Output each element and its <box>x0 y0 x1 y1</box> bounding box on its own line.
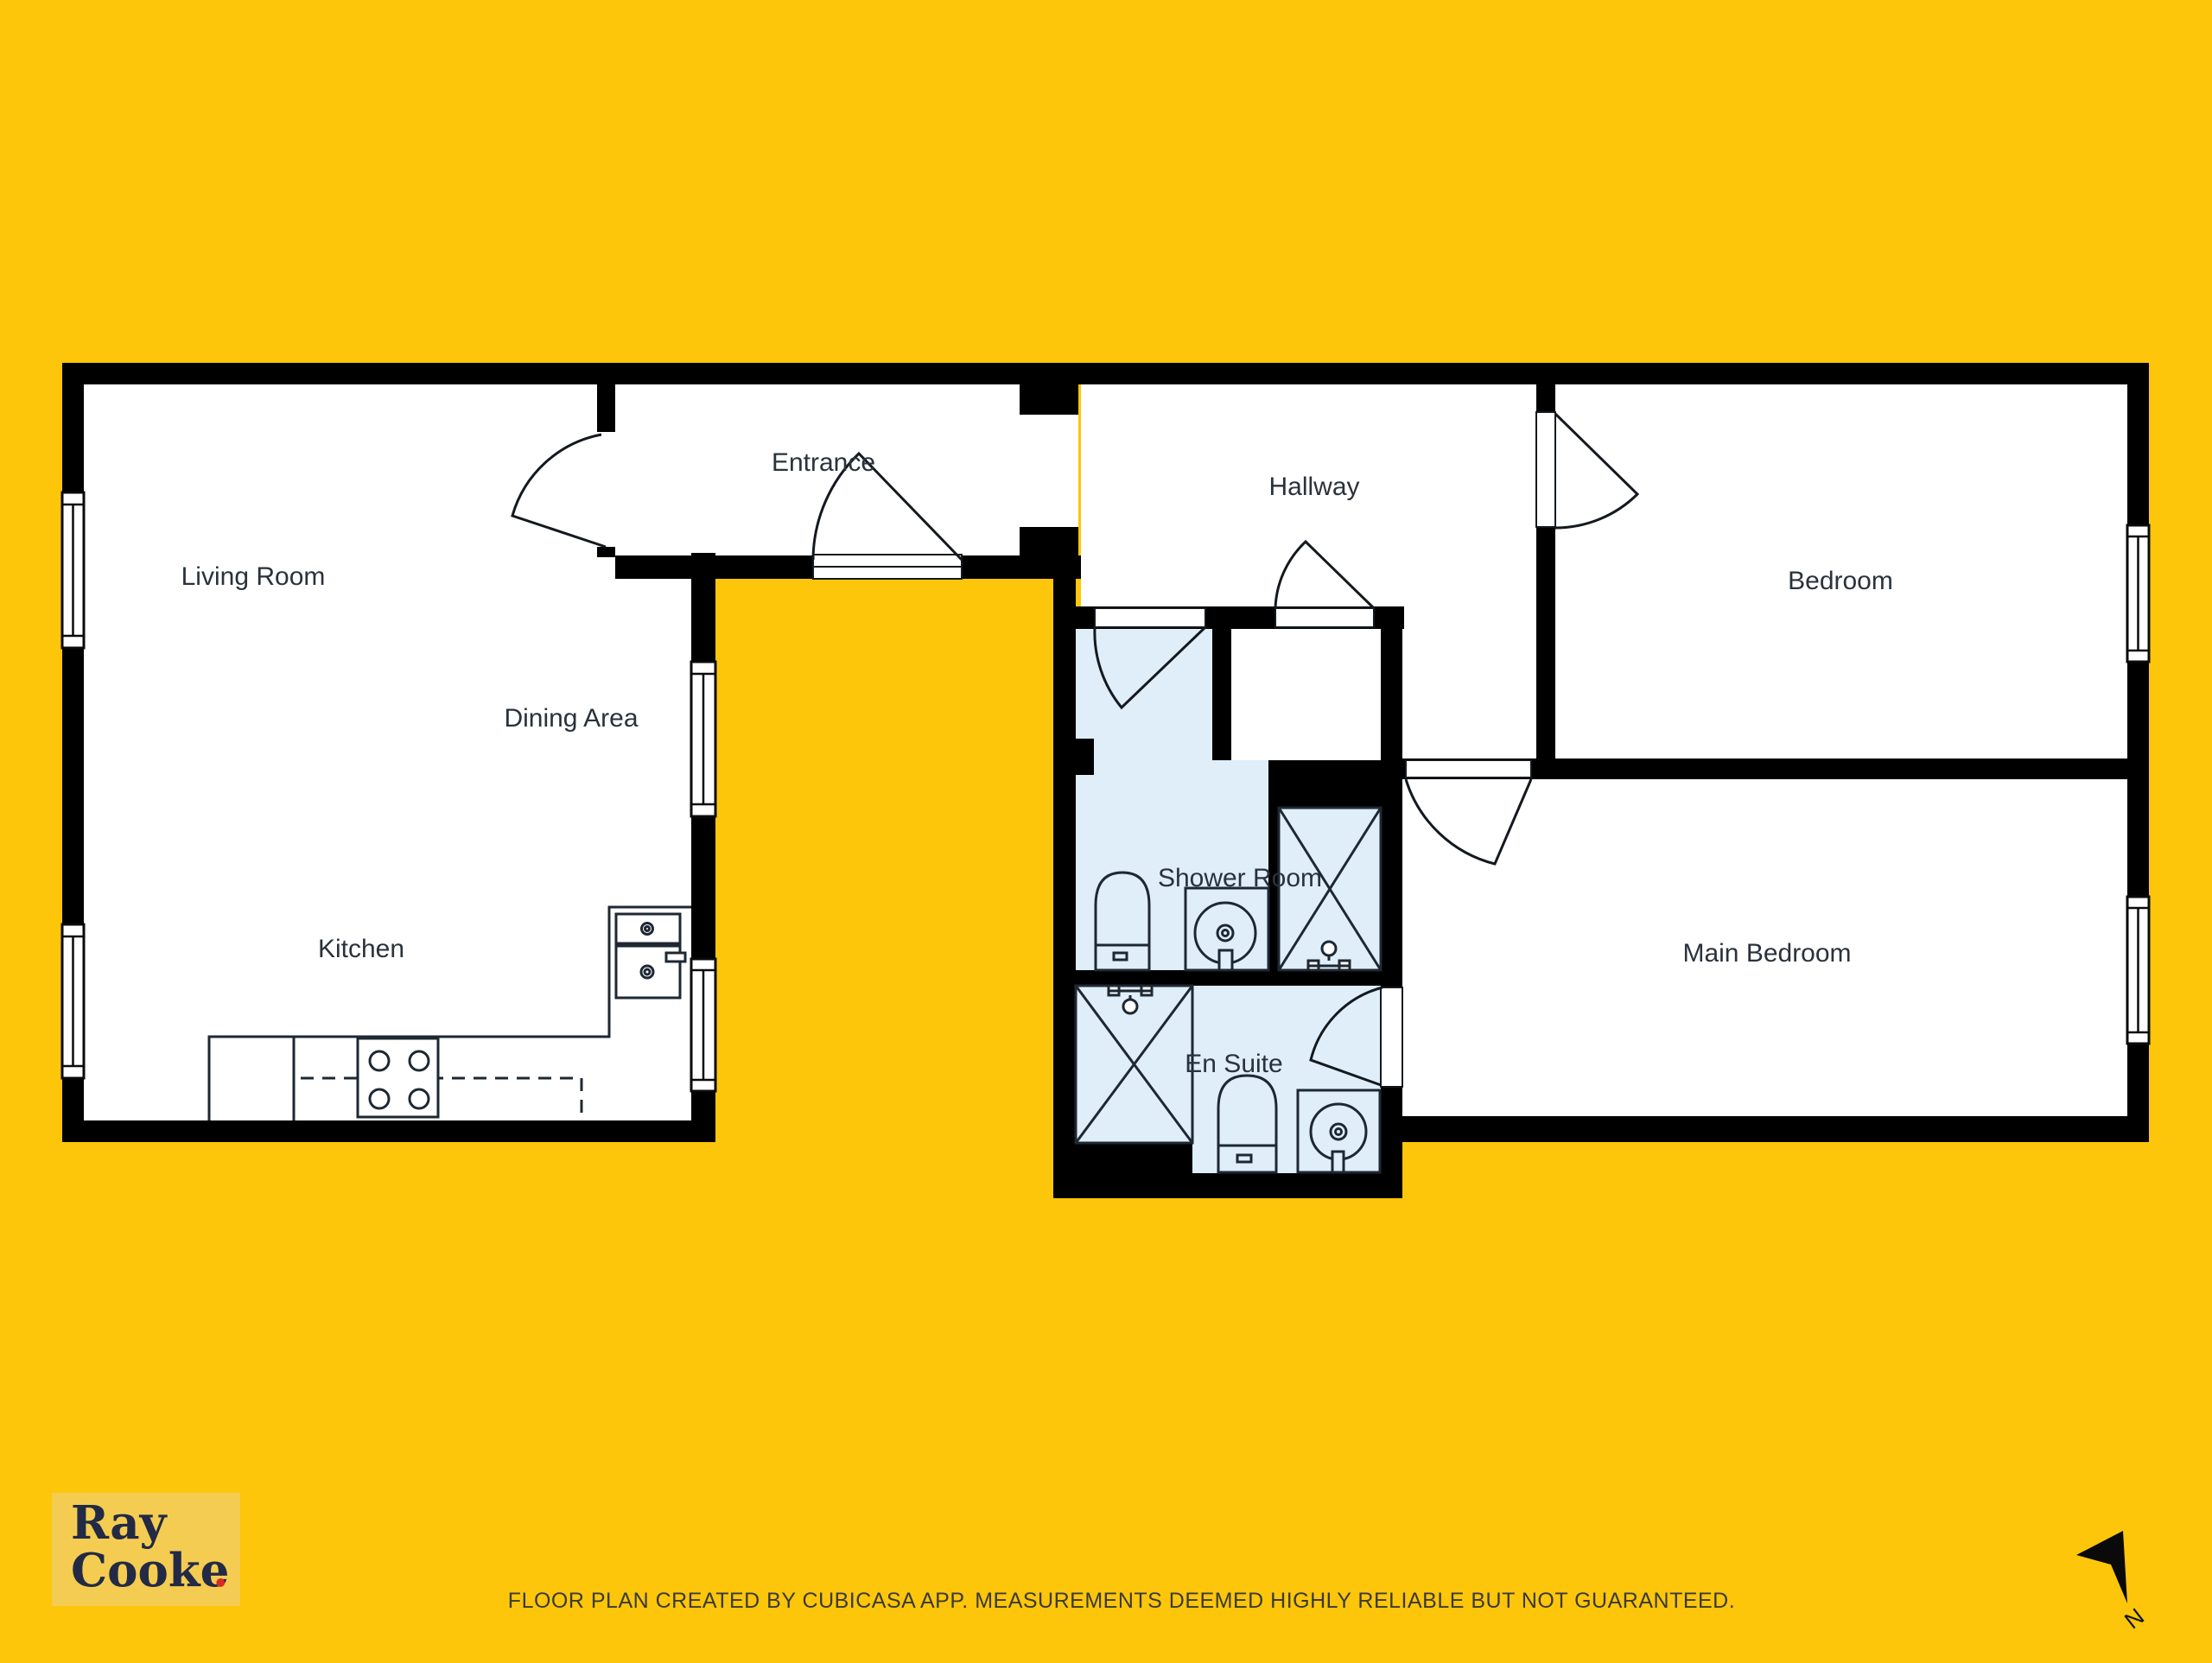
bedroom-door-opening <box>1536 412 1555 527</box>
kitchen-label: Kitchen <box>318 935 404 963</box>
en-suite-label: En Suite <box>1185 1050 1282 1078</box>
wall-closet-left <box>1212 606 1231 760</box>
wall-ensuite-bottom <box>1053 1173 1402 1198</box>
dining-area-label: Dining Area <box>504 704 638 733</box>
main-bedroom-door-opening <box>1406 760 1531 778</box>
floor-plan-page: Living Room Dining Area Kitchen Entrance… <box>0 0 2212 1659</box>
ensuite-door-opening <box>1381 987 1402 1087</box>
shower-tray-icon <box>1298 1090 1380 1172</box>
hallway-extension-floor <box>1402 606 1536 759</box>
entrance-label: Entrance <box>772 448 875 477</box>
wall-top <box>62 363 2149 384</box>
wall-bottom-left-block <box>62 1120 715 1142</box>
agency-logo: Ray Cooke . <box>52 1493 240 1606</box>
wall-shower-ensuite-divider <box>1076 970 1381 986</box>
shower-door-opening <box>1095 608 1205 627</box>
wall-closet-right <box>1381 606 1402 760</box>
living-room-label: Living Room <box>181 562 326 591</box>
bedroom-label: Bedroom <box>1788 567 1893 595</box>
window-kitchen-right <box>691 959 715 1091</box>
floor-plan-canvas: Living Room Dining Area Kitchen Entrance… <box>0 0 2212 1659</box>
dining-area-floor <box>597 557 691 1121</box>
wall-stub-shower-left <box>1076 739 1094 775</box>
entrance-hallway-passage <box>1020 415 1078 527</box>
main-bedroom-label: Main Bedroom <box>1682 939 1851 968</box>
window-living-room <box>62 492 84 648</box>
toilet-icon <box>1218 1076 1276 1172</box>
logo-dot: . <box>213 1544 228 1597</box>
north-arrow-icon: N <box>2076 1531 2149 1634</box>
closet-floor <box>1231 629 1381 760</box>
window-dining <box>691 662 715 816</box>
hallway-label: Hallway <box>1268 473 1359 501</box>
logo-line1: Ray <box>71 1496 168 1550</box>
north-letter: N <box>2120 1603 2149 1634</box>
north-arrow-shape <box>2076 1531 2127 1603</box>
window-main-bedroom <box>2127 897 2149 1044</box>
kitchen-sink-icon <box>616 914 685 998</box>
window-bedroom <box>2127 525 2149 662</box>
living-door-opening <box>597 432 615 547</box>
shower-room-label: Shower Room <box>1158 864 1322 892</box>
shower-tray-icon <box>1185 888 1268 970</box>
wall-main-bedroom-bottom <box>1402 1116 2149 1142</box>
disclaimer-text: FLOOR PLAN CREATED BY CUBICASA APP. MEAS… <box>508 1589 1735 1613</box>
wall-shower-block-left <box>1053 555 1076 1198</box>
stove-icon <box>358 1038 438 1117</box>
logo-line2: Cooke <box>71 1544 229 1597</box>
toilet-icon <box>1096 873 1149 970</box>
window-kitchen-left <box>62 924 84 1078</box>
closet-door-opening <box>1275 608 1374 627</box>
